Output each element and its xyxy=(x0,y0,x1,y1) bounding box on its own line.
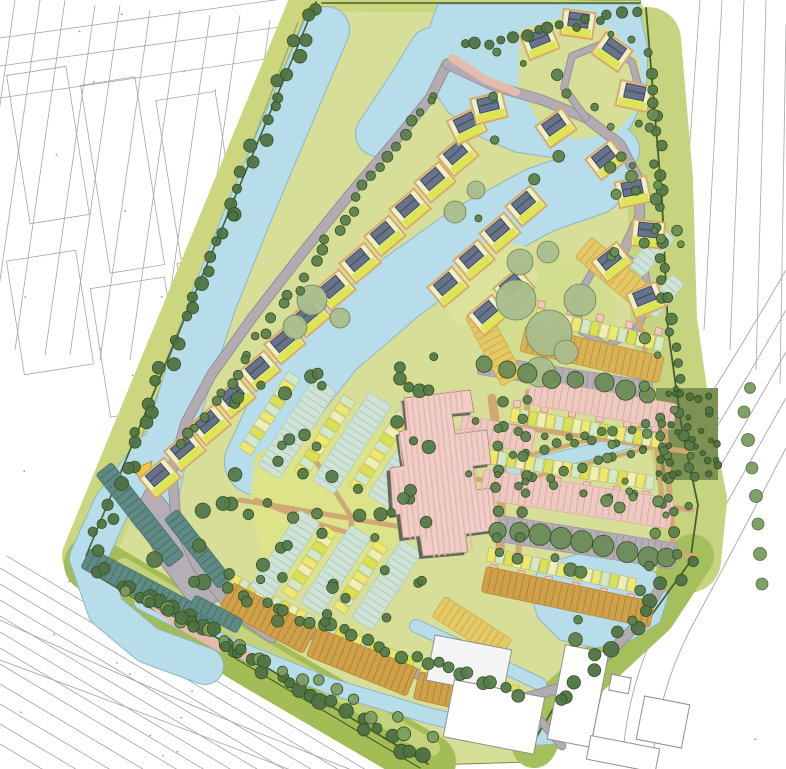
tree xyxy=(555,21,563,29)
tree xyxy=(404,382,414,392)
existing-building xyxy=(636,696,690,748)
tree xyxy=(412,652,422,662)
tree xyxy=(580,490,587,497)
tree xyxy=(461,667,473,679)
tree xyxy=(521,489,530,498)
tree xyxy=(312,442,321,451)
tree xyxy=(608,440,616,448)
tree xyxy=(279,298,289,308)
tree xyxy=(108,514,119,525)
tree xyxy=(656,471,662,477)
tree xyxy=(382,151,393,162)
map-dot xyxy=(24,296,26,298)
tree xyxy=(335,226,345,236)
tree xyxy=(422,658,434,670)
tree xyxy=(567,371,584,388)
tree xyxy=(398,493,410,505)
tree xyxy=(597,427,606,436)
tree xyxy=(567,676,580,689)
tree xyxy=(257,655,270,668)
tree xyxy=(430,353,438,361)
tree xyxy=(677,390,684,397)
tree xyxy=(550,527,572,549)
tree xyxy=(684,463,694,473)
tree xyxy=(147,552,163,568)
tree xyxy=(232,392,244,404)
tree xyxy=(653,181,662,190)
tree xyxy=(499,361,516,378)
tree xyxy=(522,478,529,485)
tree xyxy=(189,576,200,587)
map-dot xyxy=(177,751,179,753)
tree xyxy=(651,228,657,234)
tree xyxy=(409,437,417,445)
tree xyxy=(559,466,569,476)
tree xyxy=(263,598,273,608)
tree xyxy=(173,338,185,350)
tree xyxy=(628,36,635,43)
tree xyxy=(607,123,614,130)
tree xyxy=(380,566,389,575)
tree xyxy=(256,558,269,571)
tree xyxy=(611,626,623,638)
map-dot xyxy=(129,673,131,675)
tree xyxy=(640,605,651,616)
tree xyxy=(348,694,358,704)
tree xyxy=(676,574,688,586)
existing-building xyxy=(609,674,632,694)
tree xyxy=(490,482,500,492)
tree xyxy=(654,352,661,359)
tree xyxy=(705,471,712,478)
tree xyxy=(417,576,426,585)
tree xyxy=(693,444,698,449)
tree xyxy=(631,186,640,195)
map-dot xyxy=(121,13,123,15)
map-dot xyxy=(180,717,182,719)
map-dot xyxy=(99,348,101,350)
tree xyxy=(469,37,481,49)
tree xyxy=(256,575,264,583)
tree xyxy=(515,482,523,490)
shed-square xyxy=(625,321,633,329)
tree xyxy=(353,509,366,522)
tree xyxy=(176,439,185,448)
shed-square xyxy=(654,327,662,335)
tree xyxy=(247,156,259,168)
tree xyxy=(357,180,367,190)
tree xyxy=(228,468,242,482)
tree xyxy=(628,616,637,625)
tree xyxy=(746,462,758,474)
map-dot xyxy=(214,89,216,91)
tree xyxy=(520,60,526,66)
tree xyxy=(295,616,305,626)
tree xyxy=(549,481,558,490)
tree xyxy=(387,508,395,516)
tree xyxy=(657,140,668,151)
tree xyxy=(182,311,192,321)
tree xyxy=(604,162,615,173)
tree xyxy=(129,436,141,448)
tree xyxy=(188,621,199,632)
tree xyxy=(647,98,658,109)
tree xyxy=(738,406,750,418)
tree xyxy=(518,364,537,383)
tree xyxy=(522,30,534,42)
tree xyxy=(493,506,504,517)
tree xyxy=(553,150,565,162)
tree xyxy=(626,488,633,495)
tree xyxy=(611,189,621,199)
tree xyxy=(657,456,665,464)
tree xyxy=(650,528,661,539)
tree xyxy=(244,139,257,152)
tree xyxy=(674,386,679,391)
tree xyxy=(668,422,675,429)
tree xyxy=(552,439,561,448)
tree xyxy=(754,548,767,561)
tree xyxy=(175,611,188,624)
tree xyxy=(200,413,209,422)
tree xyxy=(320,235,329,244)
tree xyxy=(664,494,672,502)
tree xyxy=(376,163,385,172)
map-dot xyxy=(162,755,164,757)
tree xyxy=(750,490,763,503)
map-dot xyxy=(149,735,151,737)
tree xyxy=(587,436,596,445)
tree xyxy=(300,34,313,47)
tree xyxy=(130,428,140,438)
tree xyxy=(514,427,523,436)
house xyxy=(616,80,653,112)
tree xyxy=(574,615,583,624)
tree xyxy=(542,370,560,388)
tree xyxy=(518,451,528,461)
map-dot xyxy=(116,662,118,664)
tree xyxy=(495,548,503,556)
tree xyxy=(512,553,523,564)
tree xyxy=(228,379,238,389)
tree xyxy=(443,662,454,673)
tree xyxy=(655,170,666,181)
tree xyxy=(263,498,272,507)
tree xyxy=(529,174,540,185)
tree xyxy=(507,249,533,275)
tree xyxy=(212,396,221,405)
map-dot xyxy=(161,296,163,298)
tree xyxy=(304,617,315,628)
tree xyxy=(313,675,324,686)
tree xyxy=(492,533,502,543)
tree xyxy=(434,657,444,667)
tree xyxy=(656,432,665,441)
tree xyxy=(217,389,225,397)
map-dot xyxy=(56,154,58,156)
tree xyxy=(564,284,596,316)
tree xyxy=(485,40,494,49)
tree xyxy=(704,457,711,464)
tree xyxy=(331,683,343,695)
tree xyxy=(684,424,691,431)
tree xyxy=(251,332,259,340)
tree xyxy=(742,434,755,447)
tree xyxy=(102,499,113,510)
tree xyxy=(422,440,435,453)
tree xyxy=(271,74,283,86)
tree xyxy=(551,69,563,81)
tree xyxy=(666,391,672,397)
tree xyxy=(216,497,230,511)
tree xyxy=(650,160,659,169)
tree xyxy=(287,512,298,523)
map-dot xyxy=(132,374,134,376)
tree xyxy=(628,426,636,434)
tree xyxy=(708,438,713,443)
tree xyxy=(362,634,373,645)
map-dot xyxy=(124,210,126,212)
tree xyxy=(278,573,288,583)
tree xyxy=(687,452,694,459)
tree xyxy=(575,566,587,578)
map-dot xyxy=(79,31,81,33)
tree xyxy=(493,48,501,56)
tree xyxy=(745,383,756,394)
tree xyxy=(551,554,559,562)
tree xyxy=(616,7,627,18)
tree xyxy=(581,15,590,24)
tree xyxy=(325,695,337,707)
tree xyxy=(653,496,664,507)
tree xyxy=(588,664,601,677)
tree xyxy=(669,527,680,538)
tree xyxy=(298,468,309,479)
tree xyxy=(517,507,527,517)
tree xyxy=(365,712,378,725)
tree xyxy=(669,471,677,479)
tree xyxy=(666,313,678,325)
tree xyxy=(317,381,326,390)
tree xyxy=(647,109,658,120)
tree xyxy=(686,415,691,420)
tree xyxy=(756,578,768,590)
tree xyxy=(507,32,518,43)
tree xyxy=(675,429,681,435)
shed-square xyxy=(513,400,521,408)
tree xyxy=(540,445,549,454)
tree xyxy=(529,524,551,546)
tree xyxy=(394,362,405,373)
tree xyxy=(642,429,651,438)
tree xyxy=(497,36,505,44)
tree xyxy=(629,163,635,169)
tree xyxy=(312,368,323,379)
tree xyxy=(195,503,210,518)
tree xyxy=(496,280,536,320)
tree xyxy=(382,613,391,622)
tree xyxy=(163,605,175,617)
tree xyxy=(220,641,230,651)
tree xyxy=(277,666,287,676)
tree xyxy=(236,644,247,655)
tree xyxy=(97,519,106,528)
tree xyxy=(594,456,603,465)
map-dot xyxy=(191,690,193,692)
tree xyxy=(650,193,662,205)
tree xyxy=(277,605,288,616)
tree xyxy=(401,129,412,140)
tree xyxy=(490,136,499,145)
tree xyxy=(358,723,371,736)
tree xyxy=(689,436,695,442)
tree xyxy=(713,457,718,462)
tree xyxy=(569,633,583,647)
tree xyxy=(713,440,720,447)
tree xyxy=(578,463,588,473)
tree xyxy=(232,184,241,193)
tree xyxy=(635,120,642,127)
tree xyxy=(406,115,417,126)
tree xyxy=(145,597,155,607)
tree xyxy=(287,35,299,47)
tree xyxy=(698,428,704,434)
tree xyxy=(340,215,350,225)
tree xyxy=(241,596,252,607)
map-dot xyxy=(754,738,756,740)
tree xyxy=(633,7,642,16)
tree xyxy=(372,723,382,733)
tree xyxy=(541,22,552,33)
tree xyxy=(339,704,354,719)
tree xyxy=(394,372,407,385)
tree xyxy=(670,507,679,516)
tree xyxy=(677,241,684,248)
tree xyxy=(397,727,411,741)
tree xyxy=(203,266,214,277)
tree xyxy=(312,508,323,519)
tree xyxy=(672,343,681,352)
tree xyxy=(610,248,619,257)
tree xyxy=(654,577,667,590)
tree xyxy=(670,406,678,414)
tree xyxy=(140,416,153,429)
tree xyxy=(395,651,407,663)
tree xyxy=(639,381,649,391)
tree xyxy=(293,49,307,63)
tree xyxy=(472,418,479,425)
tree xyxy=(556,694,567,705)
tree xyxy=(537,241,559,263)
tree xyxy=(152,361,165,374)
tree xyxy=(120,586,130,596)
tree xyxy=(260,134,273,147)
tree xyxy=(115,477,129,491)
tree xyxy=(263,115,273,125)
tree xyxy=(644,561,654,571)
tree xyxy=(515,533,525,543)
tree xyxy=(688,556,698,566)
tree xyxy=(541,433,548,440)
tree xyxy=(639,333,650,344)
tree xyxy=(591,103,599,111)
tree xyxy=(663,512,669,518)
tree xyxy=(278,387,291,400)
tree xyxy=(351,193,360,202)
tree xyxy=(676,374,685,383)
shed-square xyxy=(596,314,604,322)
tree xyxy=(423,385,434,396)
tree xyxy=(150,375,161,386)
tree xyxy=(475,215,482,222)
tree xyxy=(467,181,485,199)
tree xyxy=(283,315,307,339)
tree xyxy=(195,277,209,291)
tree xyxy=(494,424,503,433)
tree xyxy=(228,211,238,221)
tree xyxy=(690,472,699,481)
tree xyxy=(345,629,357,641)
tree xyxy=(644,48,652,56)
tree xyxy=(224,569,235,580)
tree xyxy=(674,359,683,368)
tree xyxy=(122,462,134,474)
tree xyxy=(243,509,253,519)
tree xyxy=(573,23,581,31)
tree xyxy=(616,380,636,400)
tree xyxy=(403,745,415,757)
tree xyxy=(593,535,614,556)
tree xyxy=(706,393,712,399)
tree xyxy=(266,313,276,323)
tree xyxy=(666,459,674,467)
tree xyxy=(299,273,308,282)
tree xyxy=(349,207,358,216)
tree xyxy=(341,593,351,603)
map-dot xyxy=(23,470,25,472)
tree xyxy=(498,396,509,407)
tree xyxy=(571,531,593,553)
tree xyxy=(92,545,104,557)
tree xyxy=(566,434,573,441)
tree xyxy=(571,439,579,447)
tree xyxy=(322,609,332,619)
tree xyxy=(663,292,673,302)
tree xyxy=(622,478,628,484)
tree xyxy=(641,419,649,427)
map-dot xyxy=(53,634,55,636)
tree xyxy=(212,237,221,246)
tree xyxy=(353,484,362,493)
tree xyxy=(523,395,532,404)
tree xyxy=(278,441,287,450)
tree xyxy=(193,539,206,552)
tree xyxy=(639,238,649,248)
tree xyxy=(512,689,525,702)
tree xyxy=(205,251,216,262)
map-dot xyxy=(183,70,185,72)
tree xyxy=(662,476,667,481)
tree xyxy=(501,682,511,692)
tree xyxy=(509,451,516,458)
tree xyxy=(656,234,665,243)
tree xyxy=(658,420,666,428)
tree xyxy=(299,429,311,441)
tree xyxy=(518,414,528,424)
tree xyxy=(303,9,315,21)
tree xyxy=(466,471,472,477)
tree xyxy=(655,254,665,264)
